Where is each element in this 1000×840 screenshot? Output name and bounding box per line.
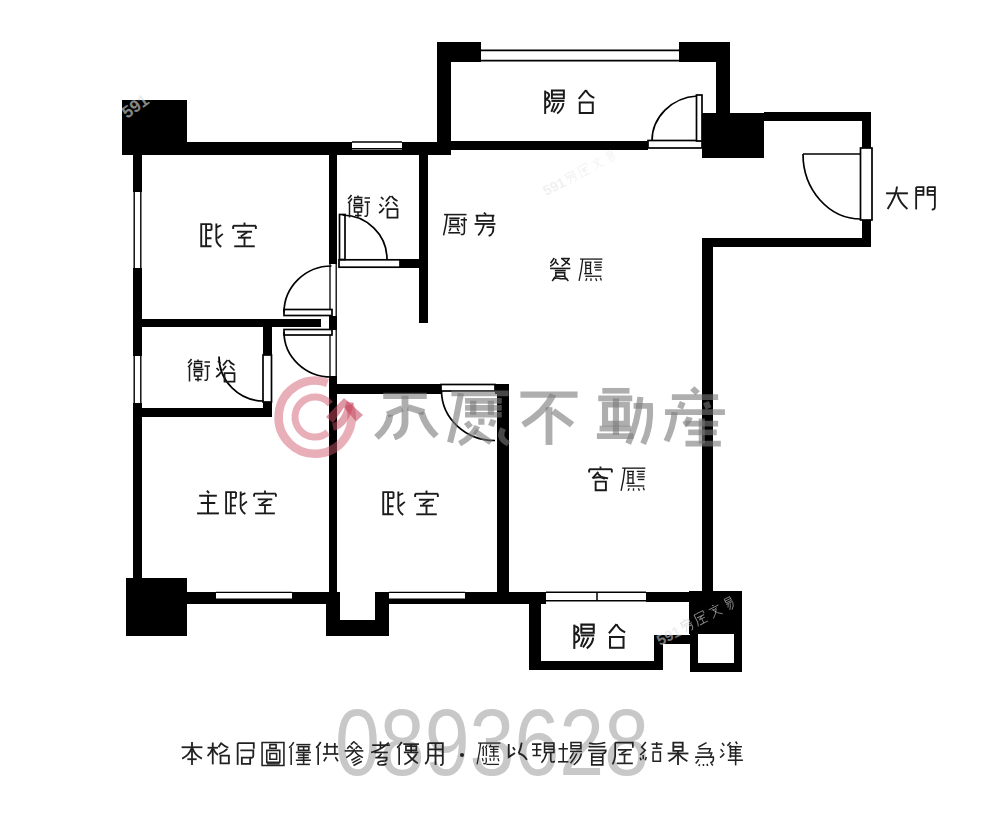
svg-text:0893628: 0893628 [335,689,649,795]
